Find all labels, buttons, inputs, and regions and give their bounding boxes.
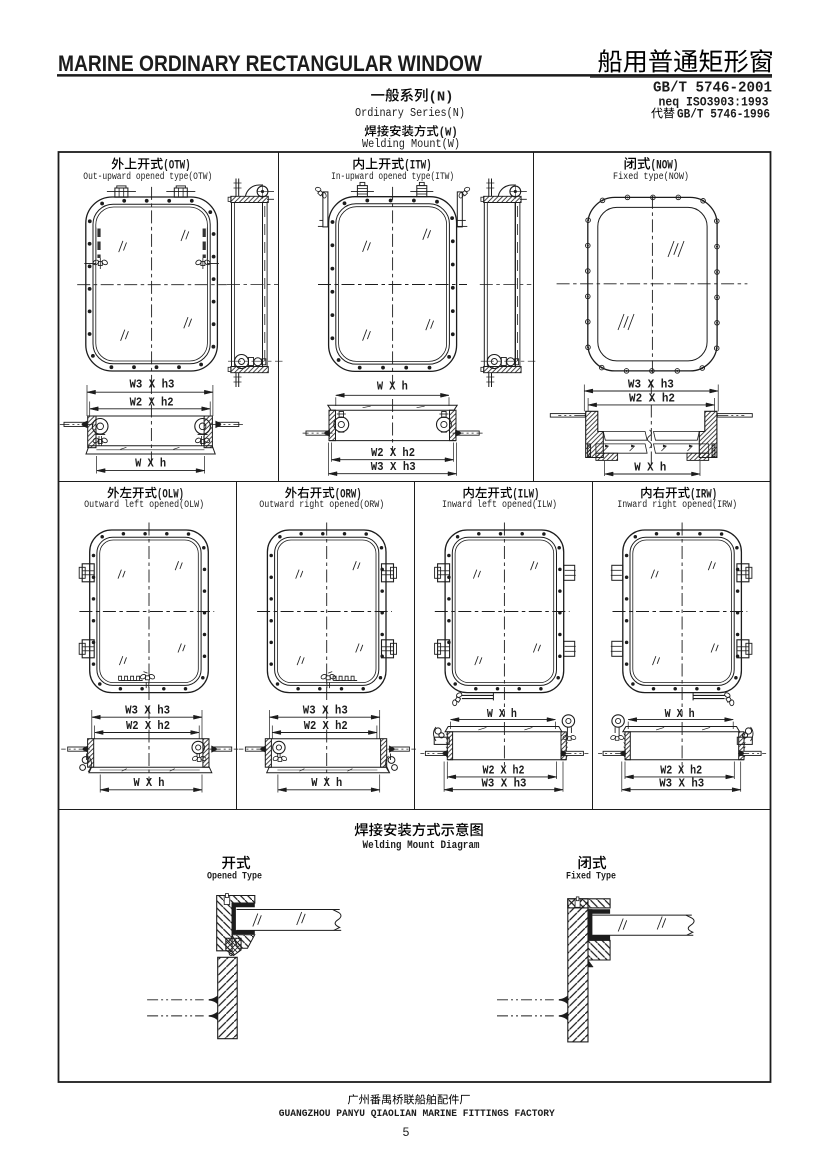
svg-text:W2 X h2: W2 X h2 <box>126 719 170 733</box>
svg-text:(N): (N) <box>429 90 454 106</box>
svg-text:W2 X h2: W2 X h2 <box>629 392 675 406</box>
svg-text:W X h: W X h <box>377 380 408 394</box>
svg-text:GUANGZHOU PANYU QIAOLIAN MARIN: GUANGZHOU PANYU QIAOLIAN MARINE FITTINGS… <box>279 1109 555 1120</box>
svg-text:W X h: W X h <box>665 707 695 721</box>
svg-text:W2 X h2: W2 X h2 <box>304 719 348 733</box>
svg-text:(ITW): (ITW) <box>404 158 432 173</box>
svg-text:W X h: W X h <box>634 461 666 475</box>
svg-text:In-upward opened type(ITW): In-upward opened type(ITW) <box>331 171 454 183</box>
svg-text:MARINE ORDINARY RECTANGULAR WI: MARINE ORDINARY RECTANGULAR WINDOW <box>58 51 483 76</box>
svg-text:Inward right opened(IRW): Inward right opened(IRW) <box>617 499 737 511</box>
svg-text:(ORW): (ORW) <box>335 487 362 501</box>
svg-text:GB/T 5746-2001: GB/T 5746-2001 <box>653 81 772 97</box>
svg-text:Ordinary Series(N): Ordinary Series(N) <box>355 107 465 120</box>
svg-text:Welding Mount(W): Welding Mount(W) <box>362 138 460 151</box>
svg-text:(ILW): (ILW) <box>512 487 539 501</box>
svg-text:(NOW): (NOW) <box>651 158 679 173</box>
svg-text:Outward right opened(ORW): Outward right opened(ORW) <box>259 499 384 511</box>
svg-text:Opened Type: Opened Type <box>207 871 262 883</box>
svg-text:(OLW): (OLW) <box>157 487 184 501</box>
svg-text:W X h: W X h <box>135 456 166 470</box>
svg-text:W3 X h3: W3 X h3 <box>125 704 170 718</box>
svg-text:W3 X h3: W3 X h3 <box>130 378 175 392</box>
svg-text:Fixed Type: Fixed Type <box>566 871 616 883</box>
svg-text:Fixed type(NOW): Fixed type(NOW) <box>613 171 689 183</box>
svg-text:(IRW): (IRW) <box>690 487 717 501</box>
svg-text:W3 X h3: W3 X h3 <box>659 776 704 790</box>
svg-text:Inward left opened(ILW): Inward left opened(ILW) <box>442 499 557 511</box>
svg-text:Outward left opened(OLW): Outward left opened(OLW) <box>84 499 204 511</box>
svg-text:W3 X h3: W3 X h3 <box>371 460 416 474</box>
svg-text:W3 X h3: W3 X h3 <box>303 704 348 718</box>
svg-text:W X h: W X h <box>487 707 517 721</box>
svg-text:W3 X h3: W3 X h3 <box>482 776 527 790</box>
svg-text:Out-upward opened type(OTW): Out-upward opened type(OTW) <box>83 171 212 183</box>
svg-text:(OTW): (OTW) <box>163 158 191 173</box>
svg-text:GB/T 5746-1996: GB/T 5746-1996 <box>677 108 770 122</box>
svg-text:Welding Mount Diagram: Welding Mount Diagram <box>363 840 480 852</box>
svg-text:5: 5 <box>403 1125 410 1139</box>
